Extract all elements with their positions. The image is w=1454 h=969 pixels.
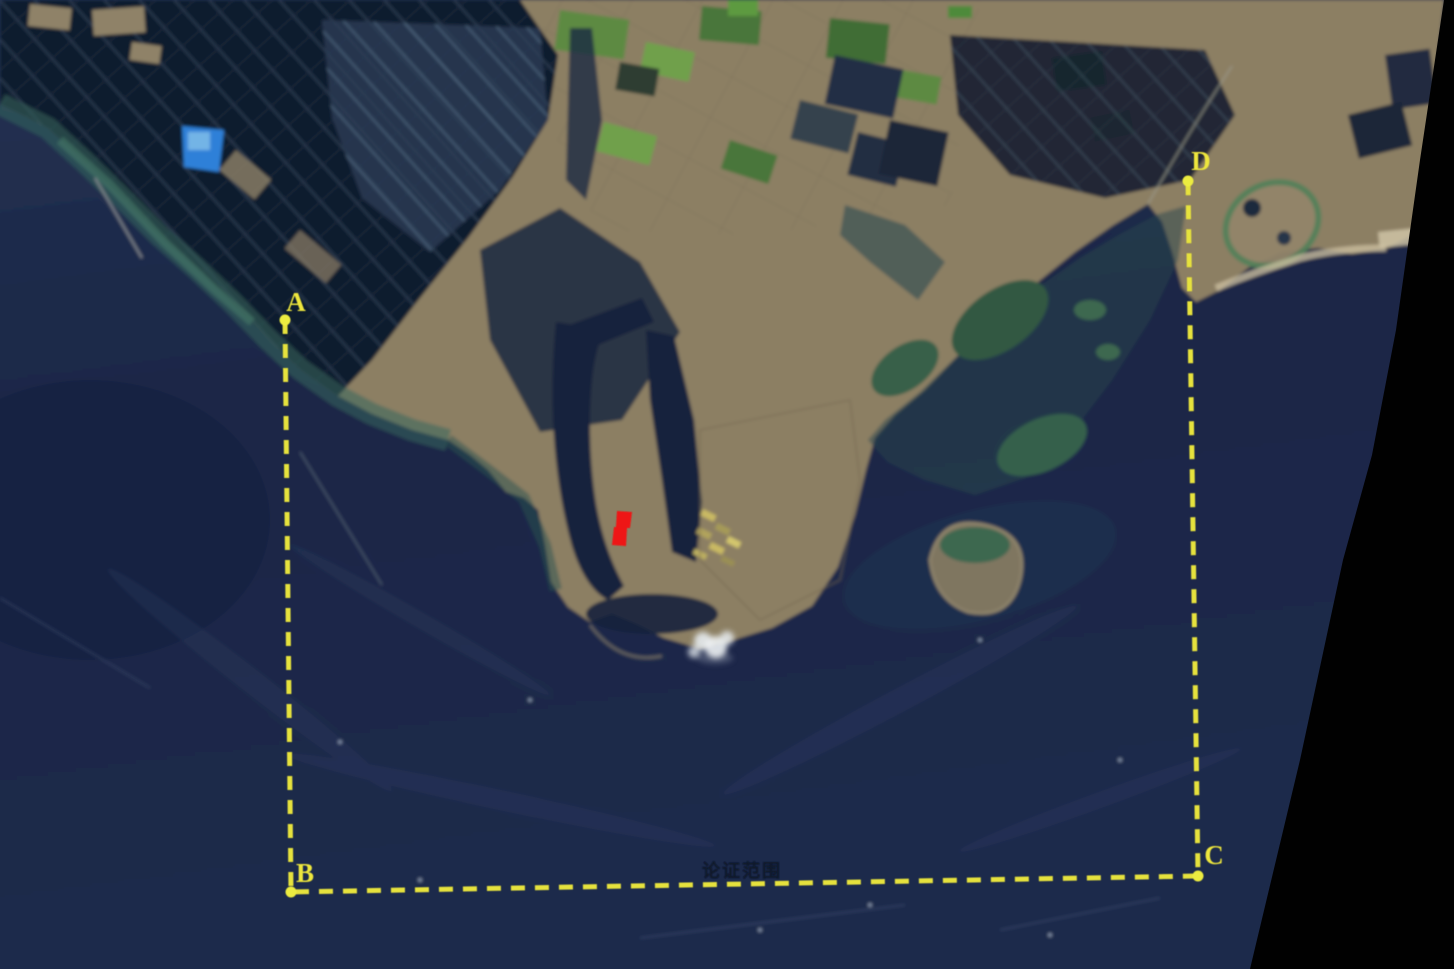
satellite-map-canvas: A B C D 论证范围	[0, 0, 1454, 969]
corner-label-b: B	[296, 858, 314, 888]
corner-label-c: C	[1204, 840, 1224, 870]
satellite-map: A B C D 论证范围	[0, 0, 1454, 969]
corner-dot-d	[1183, 176, 1194, 187]
corner-dot-c	[1193, 871, 1204, 882]
bright-blue-pond	[182, 126, 224, 172]
terrain-layer	[0, 0, 1454, 969]
corner-label-d: D	[1191, 146, 1211, 176]
corner-label-a: A	[286, 287, 306, 317]
corner-dot-b	[286, 887, 297, 898]
scope-caption: 论证范围	[702, 860, 782, 882]
